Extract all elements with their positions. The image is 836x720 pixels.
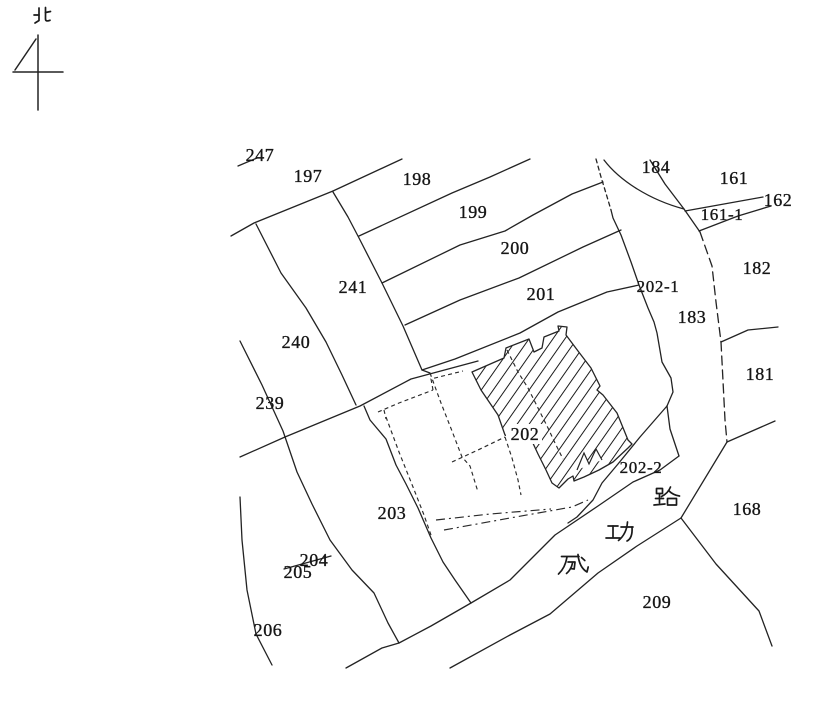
svg-text:162: 162	[764, 190, 793, 210]
svg-text:202-1: 202-1	[637, 277, 680, 296]
svg-text:202-2: 202-2	[620, 458, 663, 477]
svg-text:198: 198	[403, 169, 432, 189]
svg-text:209: 209	[643, 592, 672, 612]
svg-text:181: 181	[746, 364, 775, 384]
svg-text:199: 199	[459, 202, 488, 222]
svg-text:184: 184	[642, 157, 671, 177]
svg-text:201: 201	[527, 284, 556, 304]
svg-text:161-1: 161-1	[701, 205, 744, 224]
svg-text:206: 206	[254, 620, 283, 640]
svg-text:168: 168	[733, 499, 762, 519]
svg-text:241: 241	[339, 277, 368, 297]
svg-text:182: 182	[743, 258, 772, 278]
svg-text:197: 197	[294, 166, 323, 186]
svg-text:247: 247	[246, 145, 275, 165]
svg-text:202: 202	[511, 424, 540, 444]
svg-text:240: 240	[282, 332, 311, 352]
svg-text:161: 161	[720, 168, 749, 188]
svg-text:205: 205	[284, 562, 313, 582]
svg-text:183: 183	[678, 307, 707, 327]
svg-text:200: 200	[501, 238, 530, 258]
svg-text:239: 239	[256, 393, 285, 413]
svg-text:203: 203	[378, 503, 407, 523]
